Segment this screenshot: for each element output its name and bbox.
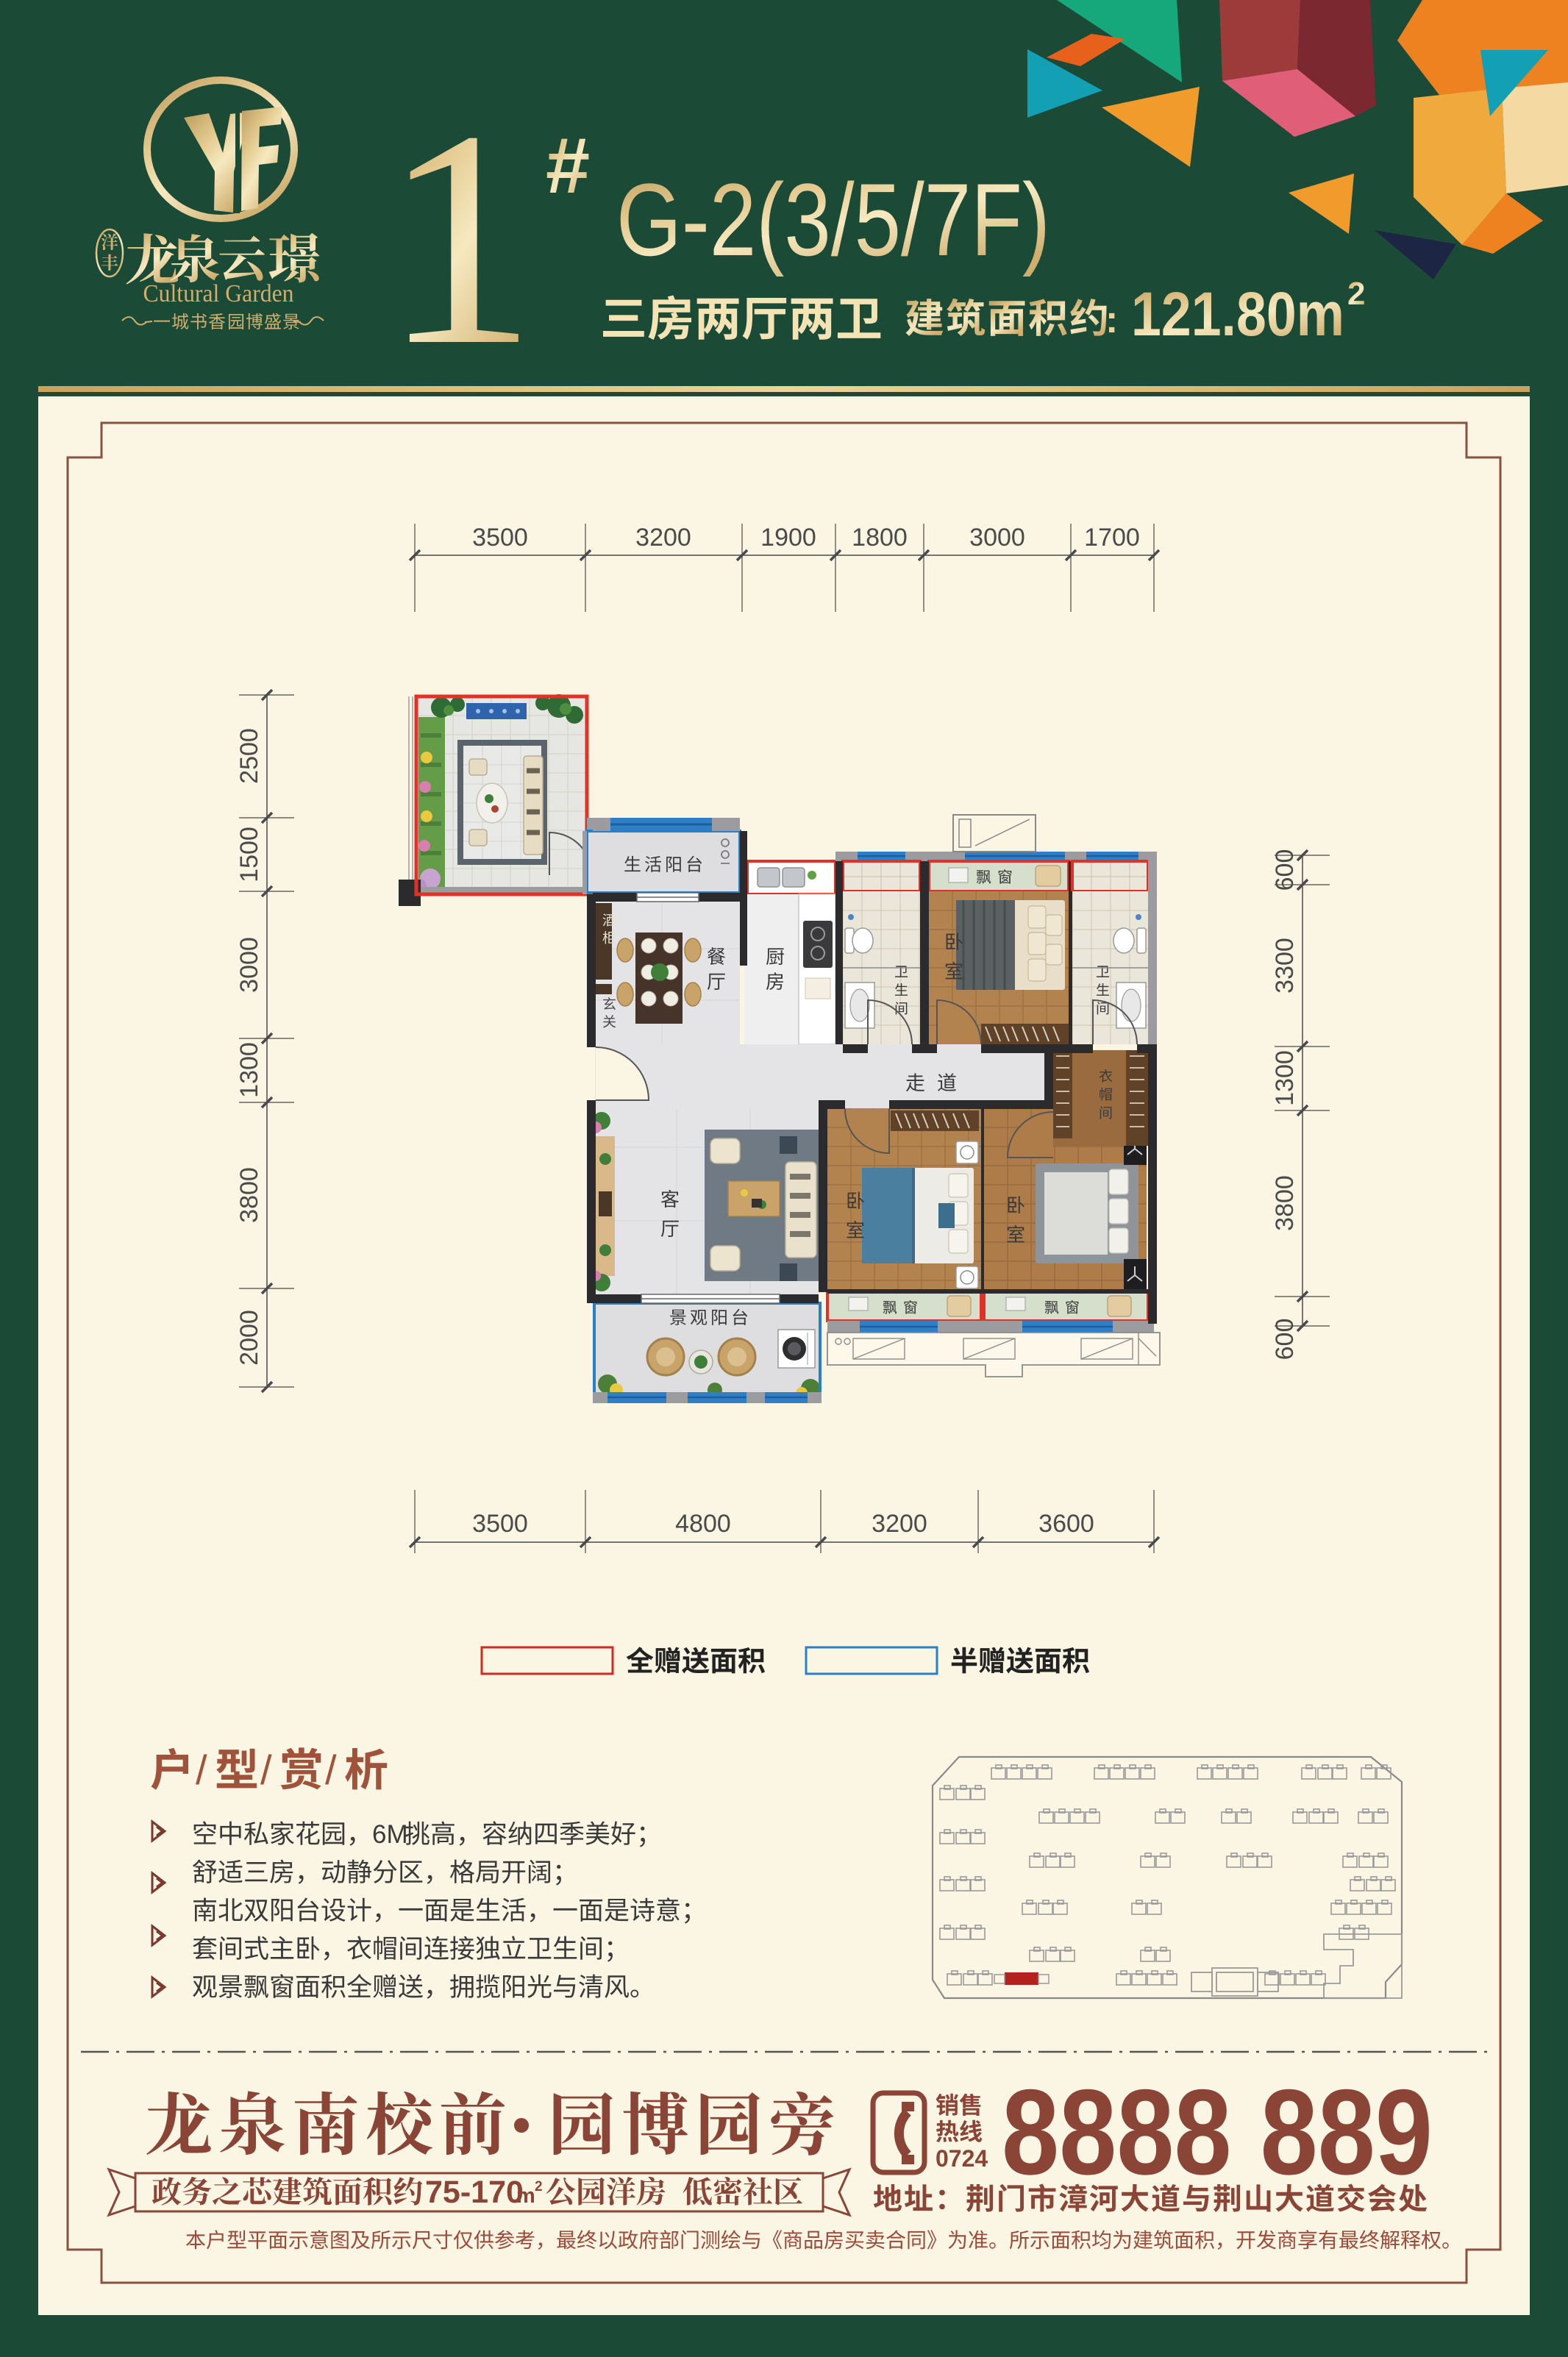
svg-text:2000: 2000 — [235, 1310, 263, 1366]
svg-text:G-2(3/5/7F): G-2(3/5/7F) — [616, 162, 1050, 277]
svg-text:2: 2 — [1347, 276, 1365, 312]
svg-text:Cultural Garden: Cultural Garden — [143, 280, 294, 307]
svg-text:3600: 3600 — [1038, 1510, 1094, 1538]
svg-text:1900: 1900 — [760, 524, 816, 552]
svg-text:3300: 3300 — [1271, 938, 1299, 994]
svg-text:/: / — [260, 1747, 272, 1793]
svg-text:1800: 1800 — [852, 524, 908, 552]
svg-text:/: / — [325, 1747, 337, 1793]
svg-text:m: m — [516, 2184, 535, 2208]
svg-text:8888 889: 8888 889 — [1002, 2064, 1433, 2200]
svg-text:3500: 3500 — [472, 1510, 528, 1538]
svg-text:1700: 1700 — [1084, 524, 1140, 552]
svg-text:3000: 3000 — [235, 937, 263, 993]
svg-text:2500: 2500 — [235, 728, 263, 784]
svg-text:1300: 1300 — [1271, 1050, 1299, 1106]
svg-text:3000: 3000 — [969, 524, 1025, 552]
svg-text:3800: 3800 — [235, 1167, 263, 1223]
svg-text:/: / — [196, 1747, 207, 1793]
svg-text:6M: 6M — [372, 1820, 408, 1849]
svg-text:3200: 3200 — [635, 524, 691, 552]
svg-text:1: 1 — [382, 67, 537, 409]
svg-text:#: # — [546, 121, 590, 210]
svg-text:0724: 0724 — [936, 2145, 988, 2172]
svg-text:600: 600 — [1271, 1319, 1299, 1361]
svg-text:121.80m: 121.80m — [1131, 279, 1344, 349]
svg-text::: : — [1105, 299, 1118, 341]
svg-text:1300: 1300 — [235, 1042, 263, 1098]
svg-text:3500: 3500 — [472, 524, 528, 552]
svg-text:3200: 3200 — [872, 1510, 927, 1538]
svg-text:1500: 1500 — [235, 827, 263, 882]
svg-text:75-170: 75-170 — [425, 2175, 524, 2210]
svg-text:4800: 4800 — [675, 1510, 731, 1538]
svg-text:3800: 3800 — [1271, 1175, 1299, 1231]
svg-text:600: 600 — [1271, 849, 1299, 891]
svg-text:2: 2 — [535, 2179, 543, 2194]
